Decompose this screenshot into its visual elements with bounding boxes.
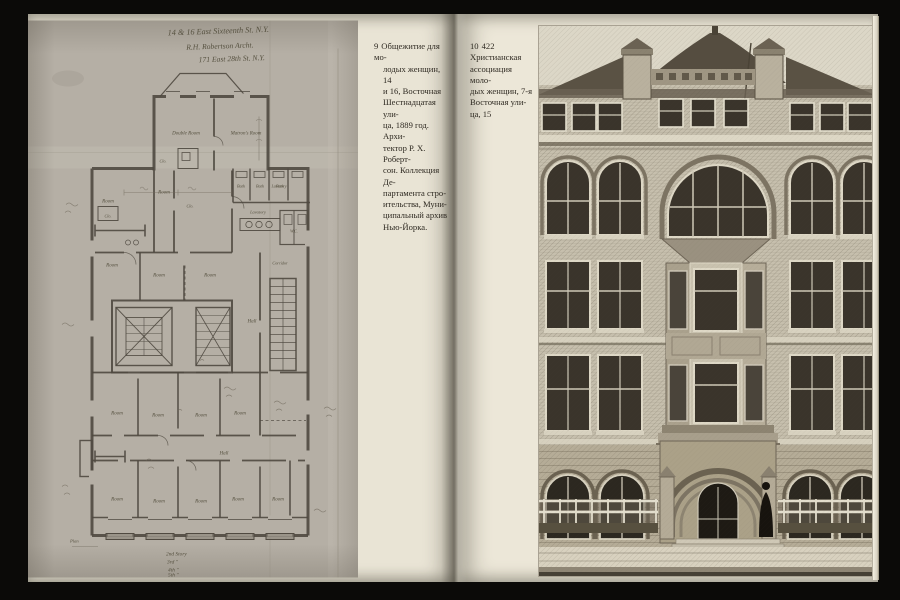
room-label: Room — [231, 498, 244, 503]
room-label: Clo. — [104, 214, 111, 219]
caption-number: 9 — [374, 41, 378, 51]
room-label: Room — [101, 200, 114, 205]
book-spread-scan: 14 & 16 East Sixteenth St. N.Y. R.H. Rob… — [0, 0, 900, 600]
room-label: Room — [157, 191, 170, 196]
caption-line: лодых женщин, 14 — [374, 64, 450, 87]
room-label: Bath — [237, 184, 245, 189]
room-label: Hall — [219, 452, 230, 457]
room-label: Hall — [247, 320, 258, 325]
caption-line: партамента стро- — [374, 188, 450, 199]
caption-line: ципальный архив — [374, 210, 450, 221]
room-label: Clo. — [159, 159, 166, 164]
page-stack-edge — [872, 16, 879, 580]
room-label: Corridor — [272, 261, 287, 266]
caption-line: и 16, Восточная — [374, 86, 450, 97]
room-label: Double Room — [171, 132, 200, 137]
caption-line: тектор Р. Х. Роберт- — [374, 143, 450, 166]
caption-figure-10: 10422 Христианская ассоциация моло- дых … — [457, 41, 533, 120]
room-label: Room — [110, 498, 123, 503]
room-label: Room — [152, 500, 165, 505]
room-label: Bath — [276, 184, 284, 189]
caption-line: ца, 1889 год. Архи- — [374, 120, 450, 143]
floor-list-line: 5th " — [168, 573, 179, 579]
plan-note: Plan — [69, 539, 79, 544]
room-label: Room — [194, 500, 207, 505]
room-label: Lavatory — [249, 210, 266, 215]
caption-line: дых женщин, 7-я — [457, 86, 533, 97]
room-label: Room — [152, 274, 165, 279]
room-label: Bath — [256, 184, 264, 189]
caption-line: 10422 Христианская — [457, 41, 533, 64]
room-label: Clo. — [186, 204, 193, 209]
floor-list-line: 2nd Story — [166, 552, 187, 558]
caption-line: Шестнадцатая ули- — [374, 97, 450, 120]
room-label: W.C. — [290, 229, 298, 234]
floor-plan-drawing: 14 & 16 East Sixteenth St. N.Y. R.H. Rob… — [28, 20, 358, 578]
caption-line: ассоциация моло- — [457, 64, 533, 87]
caption-text: Общежитие для мо- — [374, 41, 440, 62]
building-photograph — [538, 25, 875, 577]
room-label: Room — [233, 412, 246, 417]
caption-line: Нью-Йорка. — [374, 222, 450, 233]
floor-list-line: 3rd " — [166, 560, 179, 566]
room-label: Room — [151, 414, 164, 419]
room-label: Matron's Room — [230, 132, 262, 137]
room-label: Room — [110, 412, 123, 417]
caption-line: ца, 15 — [457, 109, 533, 120]
caption-line: 9Общежитие для мо- — [374, 41, 450, 64]
caption-number: 10 — [470, 41, 479, 51]
caption-line: сон. Коллекция Де- — [374, 165, 450, 188]
caption-line: Восточная ули- — [457, 97, 533, 108]
halftone-overlay — [538, 25, 875, 577]
caption-line: ительства, Муни- — [374, 199, 450, 210]
room-label: Room — [105, 264, 118, 269]
room-label: Room — [203, 274, 216, 279]
room-label: Room — [194, 414, 207, 419]
caption-figure-9: 9Общежитие для мо- лодых женщин, 14 и 16… — [374, 41, 450, 233]
room-label: Room — [271, 498, 284, 503]
